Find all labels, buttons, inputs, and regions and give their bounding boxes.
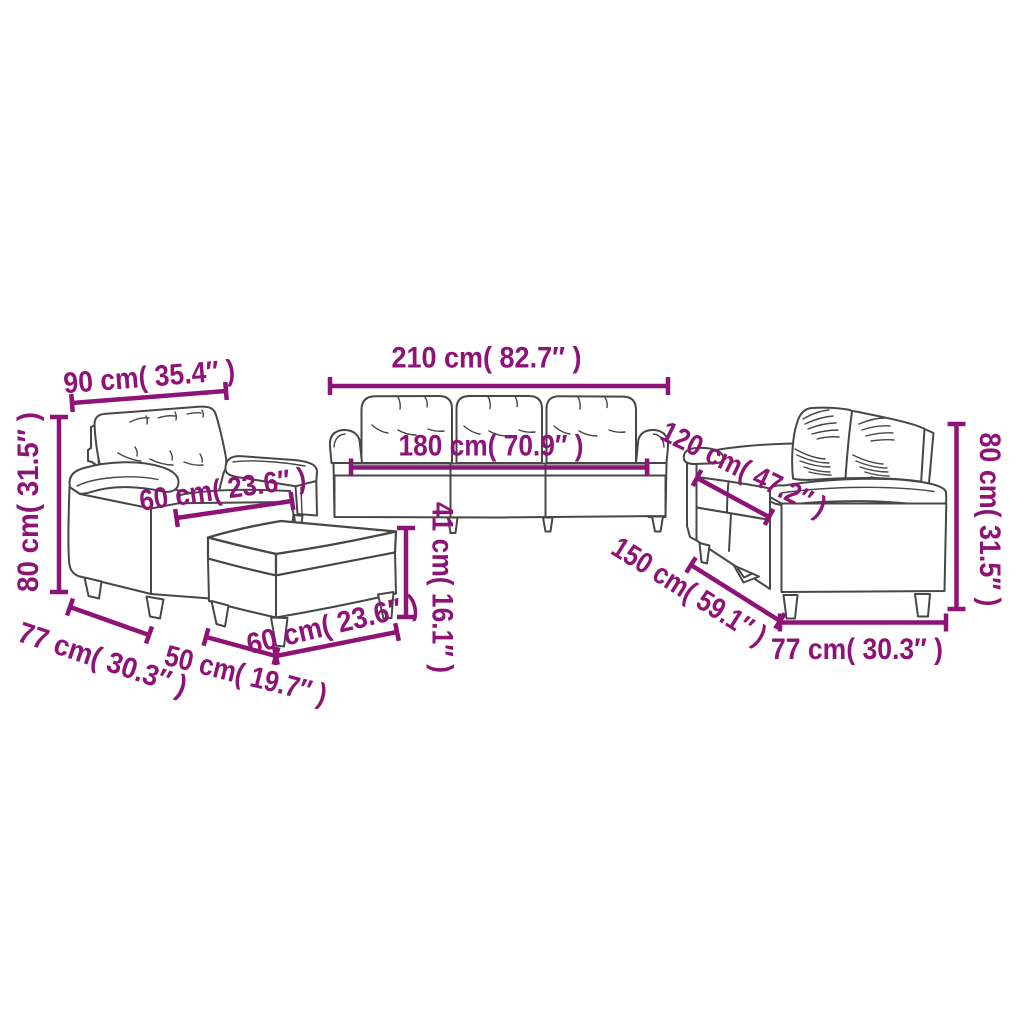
svg-text:77 cm( 30.3″ ): 77 cm( 30.3″ )	[771, 633, 943, 666]
svg-text:180 cm( 70.9″ ): 180 cm( 70.9″ )	[399, 430, 584, 463]
svg-text:41 cm( 16.1″ ): 41 cm( 16.1″ )	[426, 502, 459, 673]
svg-text:80 cm( 31.5″ ): 80 cm( 31.5″ )	[973, 433, 1006, 607]
svg-text:80 cm( 31.5″ ): 80 cm( 31.5″ )	[12, 412, 45, 592]
svg-text:210 cm( 82.7″ ): 210 cm( 82.7″ )	[392, 342, 582, 375]
